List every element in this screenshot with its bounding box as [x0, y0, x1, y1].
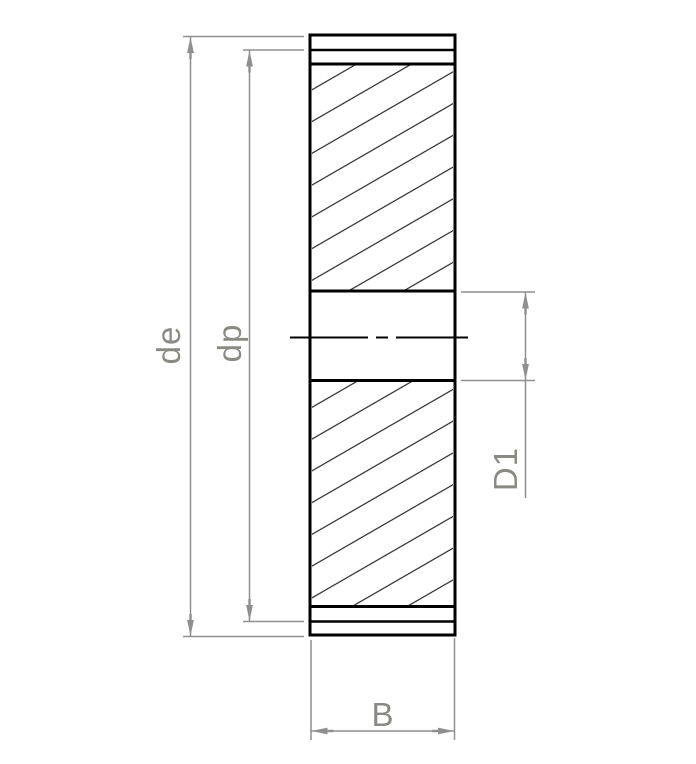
- dimension-b: B: [311, 638, 455, 740]
- d1-label: D1: [487, 447, 524, 491]
- b-arrow-left-icon: [312, 728, 334, 735]
- technical-drawing-canvas: de dp D1 B: [0, 0, 696, 764]
- de-arrow-up-icon: [187, 37, 194, 59]
- de-label: de: [150, 326, 187, 365]
- dimension-dp: dp: [211, 50, 304, 622]
- d1-arrow-up-icon: [522, 293, 529, 315]
- b-label: B: [371, 696, 394, 733]
- dp-arrow-up-icon: [246, 51, 253, 73]
- gear-body: [310, 35, 455, 635]
- b-arrow-right-icon: [432, 728, 454, 735]
- dimension-d1: D1: [461, 292, 535, 498]
- de-arrow-down-icon: [187, 614, 194, 636]
- dp-arrow-down-icon: [246, 599, 253, 621]
- upper-hatch-region: [312, 65, 453, 290]
- gear-drawing-svg: de dp D1 B: [0, 0, 696, 764]
- dp-label: dp: [211, 324, 248, 363]
- d1-arrow-down-icon: [522, 358, 529, 380]
- lower-hatch-region: [312, 382, 453, 606]
